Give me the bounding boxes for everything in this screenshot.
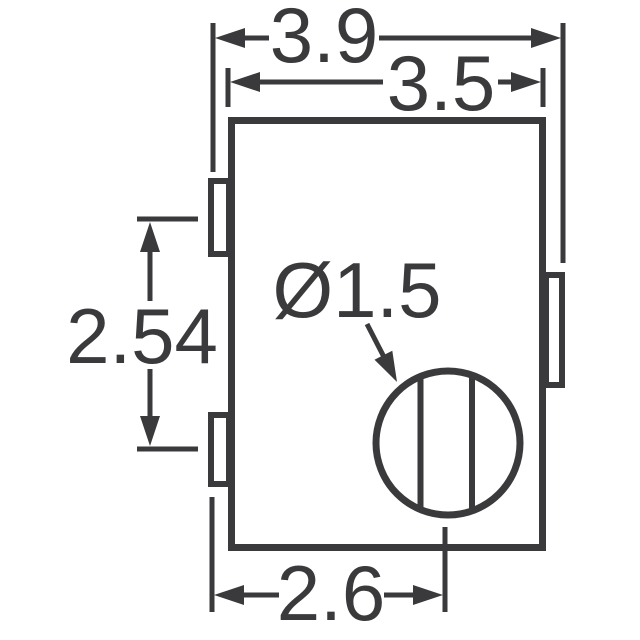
dimension-terminal-pitch: 2.54 [66,219,218,449]
arrow-left-icon [215,28,245,48]
rotor-circle [376,371,520,515]
dimension-label-body-width: 3.5 [387,39,495,127]
right-terminal [546,275,562,385]
arrow-left-icon [214,585,244,605]
arrow-down-icon [140,416,160,446]
dimension-drawing: 3.9 3.5 2.54 [0,0,640,640]
dimension-label-terminal-pitch: 2.54 [66,292,218,380]
arrow-right-icon [511,72,541,92]
dimension-label-rotor-diameter: Ø1.5 [272,246,441,334]
arrow-up-icon [140,222,160,252]
dimension-label-overall-width: 3.9 [270,0,378,79]
arrow-right-icon [531,28,561,48]
drawing-svg: 3.9 3.5 2.54 [0,0,640,640]
left-terminal-top [211,181,229,254]
dimension-label-pad-to-rotor: 2.6 [277,549,385,637]
arrow-right-icon [413,585,443,605]
left-terminal-bottom [211,415,229,484]
arrow-left-icon [230,72,260,92]
